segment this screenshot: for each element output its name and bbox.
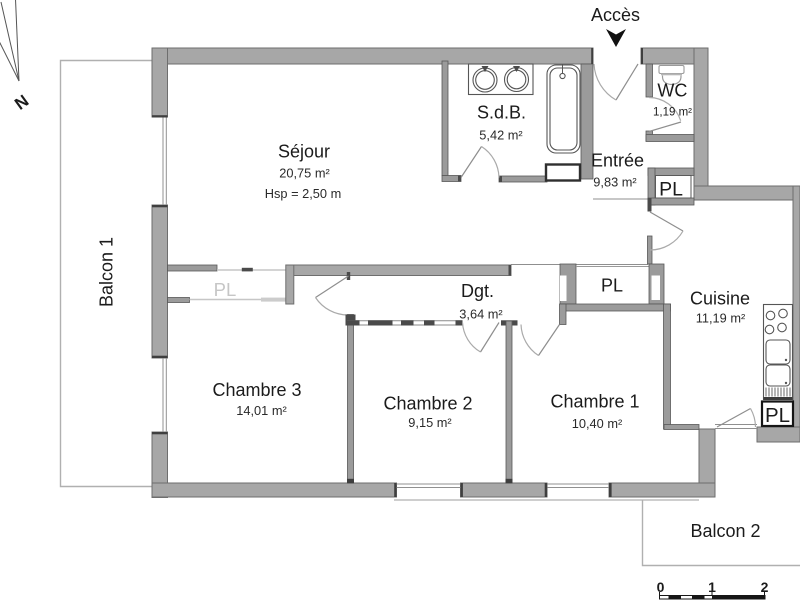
svg-text:WC: WC [657,80,687,100]
svg-text:Dgt.: Dgt. [461,281,494,301]
svg-text:20,75 m²: 20,75 m² [279,166,330,181]
svg-text:Balcon 1: Balcon 1 [96,237,116,307]
svg-text:PL: PL [659,179,683,201]
svg-text:PL: PL [601,276,623,296]
svg-text:Entrée: Entrée [591,151,644,171]
svg-text:S.d.B.: S.d.B. [477,102,526,122]
svg-text:10,40 m²: 10,40 m² [572,416,623,431]
svg-text:Balcon 2: Balcon 2 [690,521,760,541]
svg-text:5,42 m²: 5,42 m² [479,128,523,143]
svg-text:Accès: Accès [591,5,640,25]
svg-text:9,83 m²: 9,83 m² [593,175,637,190]
svg-text:Chambre 1: Chambre 1 [550,392,639,412]
svg-text:PL: PL [765,404,790,427]
svg-text:3,64 m²: 3,64 m² [459,307,503,322]
svg-text:PL: PL [214,279,237,300]
svg-text:Hsp = 2,50 m: Hsp = 2,50 m [265,186,341,201]
svg-text:Cuisine: Cuisine [690,289,750,309]
svg-text:0: 0 [657,579,665,595]
svg-text:14,01 m²: 14,01 m² [236,403,287,418]
svg-text:Chambre 3: Chambre 3 [212,380,301,400]
svg-text:1,19 m²: 1,19 m² [653,107,692,119]
svg-text:9,15 m²: 9,15 m² [408,415,452,430]
svg-text:11,19 m²: 11,19 m² [696,311,746,326]
svg-text:Séjour: Séjour [278,142,330,162]
svg-text:Chambre 2: Chambre 2 [383,394,472,414]
